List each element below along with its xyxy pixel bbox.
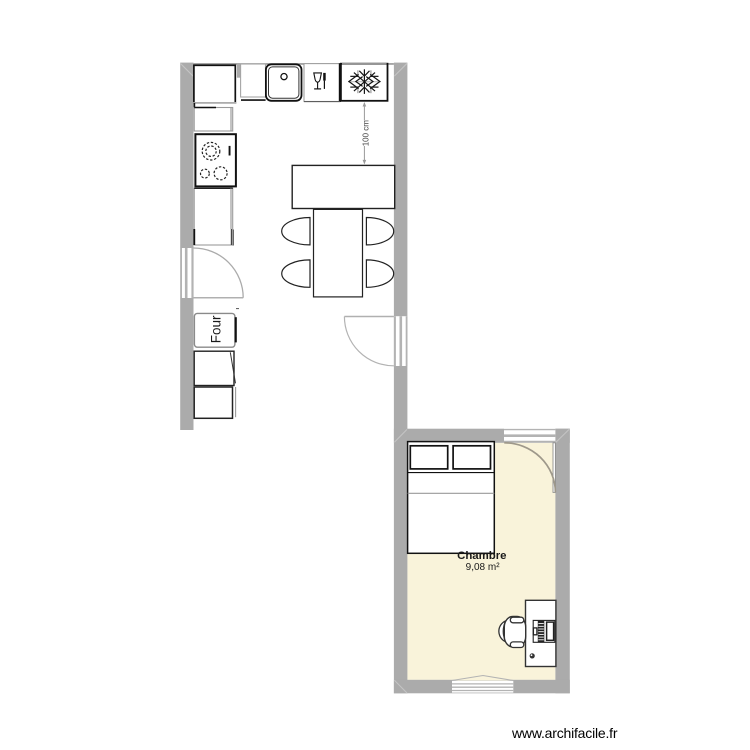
svg-text:www.archifacile.fr: www.archifacile.fr	[511, 725, 618, 741]
svg-text:9,08 m²: 9,08 m²	[466, 562, 501, 573]
svg-text:Four: Four	[208, 315, 223, 343]
svg-text:Chambre: Chambre	[457, 550, 506, 562]
svg-text:100 cm: 100 cm	[361, 120, 370, 147]
